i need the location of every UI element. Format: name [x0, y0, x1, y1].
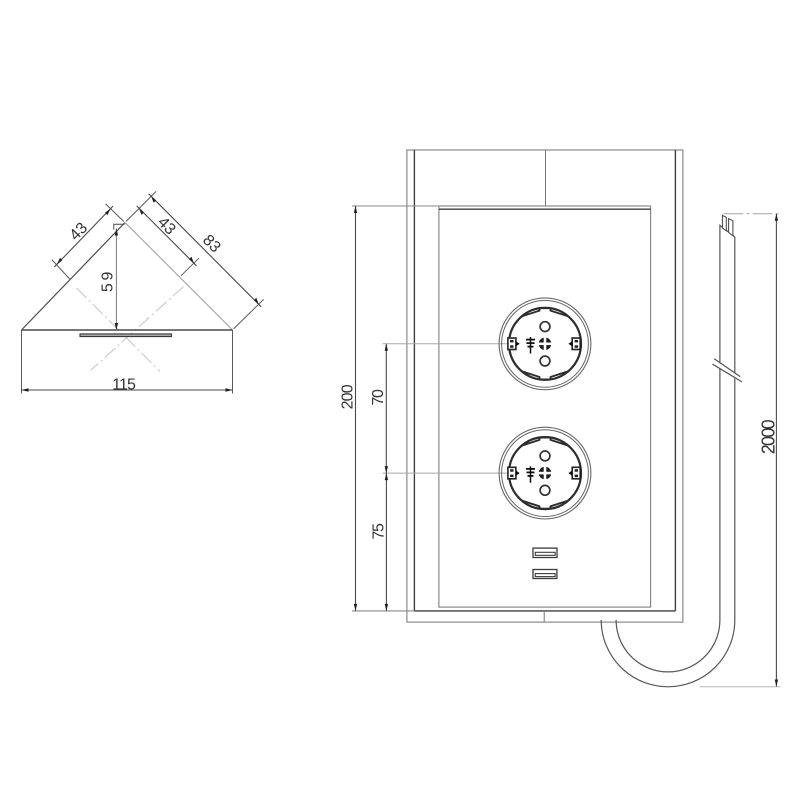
svg-text:2000: 2000 [759, 419, 779, 454]
svg-text:200: 200 [339, 384, 356, 409]
svg-text:75: 75 [371, 523, 388, 540]
svg-text:115: 115 [112, 376, 136, 393]
svg-text:70: 70 [370, 389, 387, 406]
